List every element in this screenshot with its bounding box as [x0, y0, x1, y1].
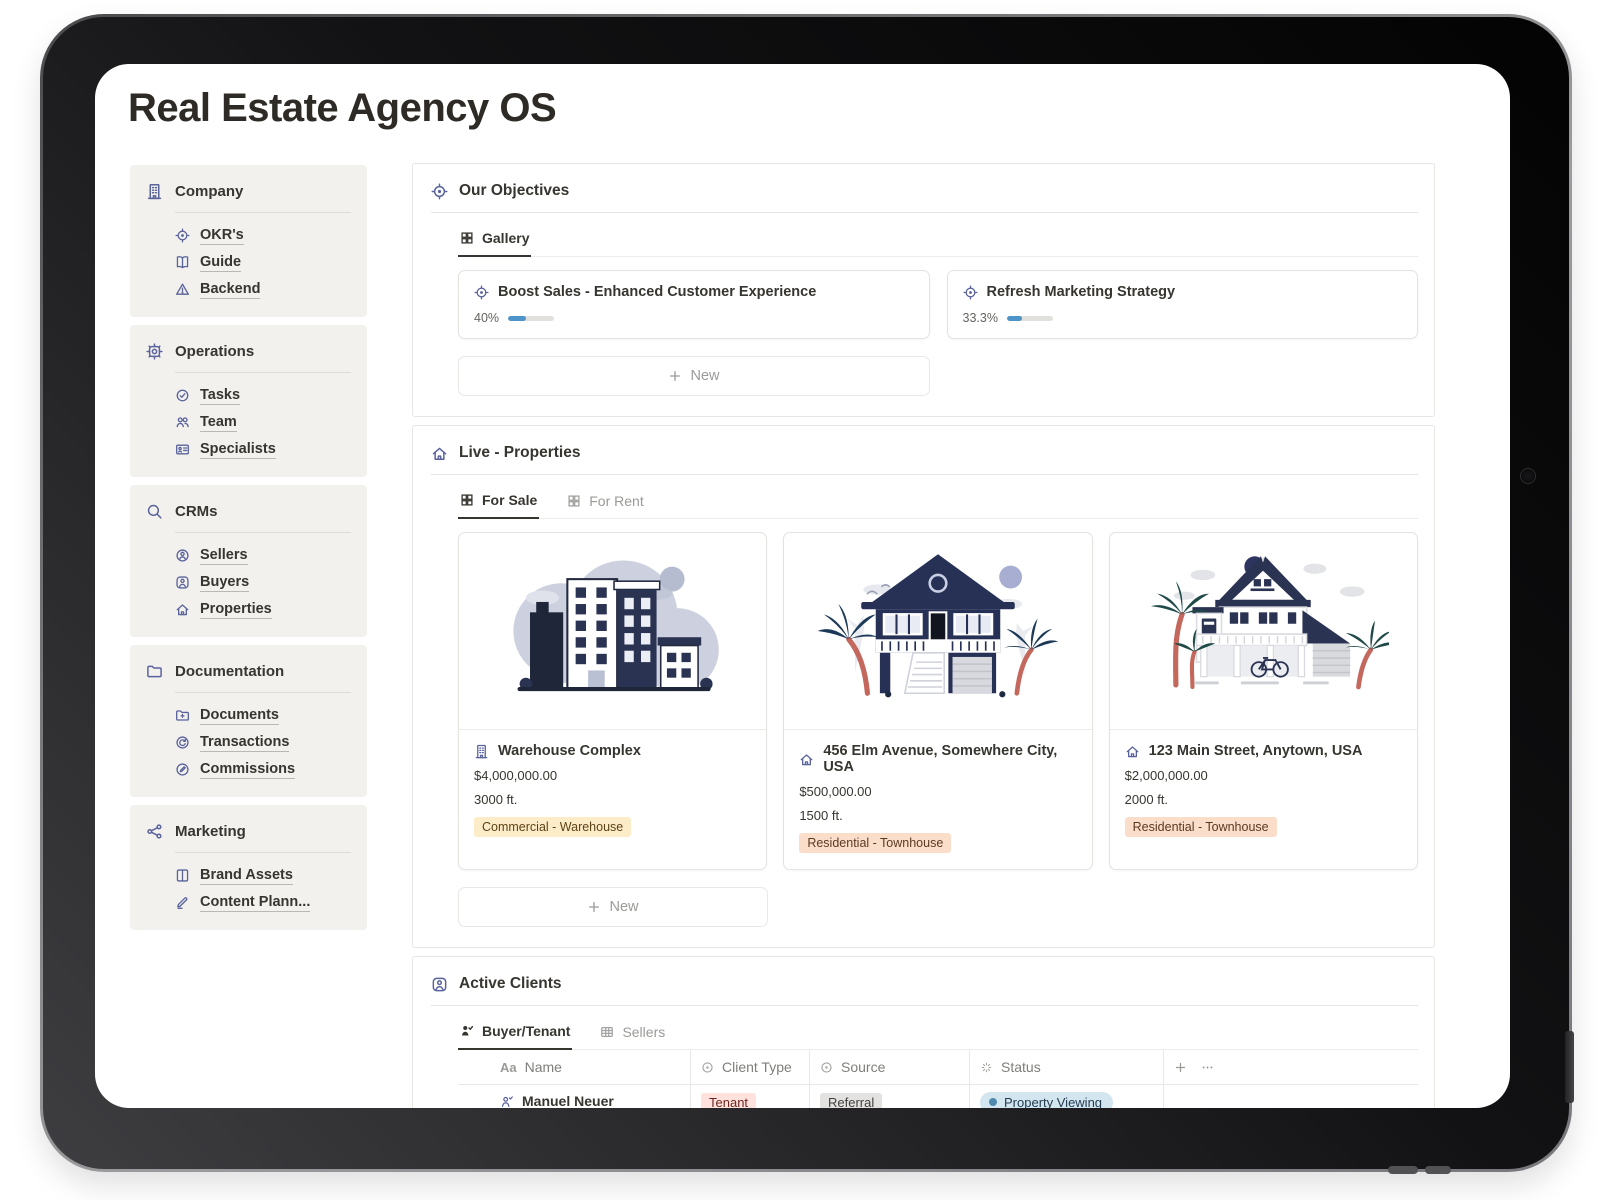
person-circle-icon	[431, 976, 448, 993]
divider	[175, 372, 351, 373]
sidebar-section-header: CRMs	[146, 503, 351, 520]
sidebar-item-okrs[interactable]: OKR's	[175, 222, 351, 249]
progress-bar	[508, 316, 554, 321]
objective-title: Refresh Marketing Strategy	[987, 284, 1176, 300]
side-button	[1565, 1031, 1574, 1103]
sidebar-item-guide[interactable]: Guide	[175, 249, 351, 276]
objectives-title: Our Objectives	[459, 182, 569, 200]
divider	[175, 692, 351, 693]
home-icon	[799, 752, 814, 767]
tab-label: For Rent	[589, 493, 643, 509]
properties-title: Live - Properties	[459, 444, 580, 462]
share-icon	[146, 823, 163, 840]
sidebar-section-documentation: Documentation Documents Transactions	[130, 645, 367, 797]
table-header-row: Aa Name Client Type Source	[458, 1050, 1418, 1085]
column-header-client-type[interactable]: Client Type	[722, 1059, 792, 1075]
tab-label: Buyer/Tenant	[482, 1023, 570, 1039]
sidebar-item-transactions[interactable]: Transactions	[175, 729, 351, 756]
sidebar-item-documents[interactable]: Documents	[175, 702, 351, 729]
column-header-source[interactable]: Source	[841, 1059, 885, 1075]
tablet-screen: Real Estate Agency OS Company OKR's	[95, 64, 1510, 1108]
property-tag: Residential - Townhouse	[1125, 817, 1277, 837]
tab-sellers[interactable]: Sellers	[598, 1014, 667, 1050]
column-header-status[interactable]: Status	[1001, 1059, 1041, 1075]
sidebar-item-specialists[interactable]: Specialists	[175, 436, 351, 463]
beach-villa-illustration	[1110, 533, 1417, 730]
progress-percent: 40%	[474, 311, 499, 325]
more-options-icon[interactable]	[1201, 1061, 1214, 1074]
sidebar-section-label: Company	[175, 183, 243, 200]
table-icon	[600, 1025, 614, 1039]
target-icon	[963, 285, 978, 300]
home-icon	[175, 602, 190, 617]
folder-plus-icon	[175, 708, 190, 723]
building-icon	[146, 183, 163, 200]
property-title: Warehouse Complex	[498, 743, 641, 759]
check-circle-icon	[175, 388, 190, 403]
select-icon	[701, 1061, 714, 1074]
tablet-bezel: Real Estate Agency OS Company OKR's	[43, 17, 1569, 1169]
objective-title: Boost Sales - Enhanced Customer Experien…	[498, 284, 816, 300]
beach-house-illustration	[784, 533, 1091, 730]
sidebar-item-content-planner[interactable]: Content Plann...	[175, 889, 351, 916]
clients-title: Active Clients	[459, 975, 562, 993]
client-name[interactable]: Manuel Neuer	[522, 1093, 614, 1108]
sidebar-item-properties[interactable]: Properties	[175, 596, 351, 623]
sidebar-section-company: Company OKR's Guide	[130, 165, 367, 317]
property-price: $4,000,000.00	[474, 768, 751, 783]
divider	[175, 532, 351, 533]
book-icon	[175, 255, 190, 270]
refresh-circle-icon	[175, 735, 190, 750]
tab-label: For Sale	[482, 492, 537, 508]
property-tag: Commercial - Warehouse	[474, 817, 631, 837]
sidebar-section-label: Documentation	[175, 663, 284, 680]
home-icon	[431, 445, 448, 462]
sidebar-item-sellers[interactable]: Sellers	[175, 542, 351, 569]
person-check-icon	[460, 1024, 474, 1038]
source-tag: Referral	[820, 1093, 882, 1109]
pencil-circle-icon	[175, 762, 190, 777]
sidebar-section-crms: CRMs Sellers Buyers	[130, 485, 367, 637]
people-icon	[175, 415, 190, 430]
tab-for-rent[interactable]: For Rent	[565, 483, 645, 519]
status-badge: Property Viewing	[980, 1092, 1113, 1109]
sidebar-section-header: Documentation	[146, 663, 351, 680]
camera-icon	[1521, 469, 1535, 483]
sidebar-item-buyers[interactable]: Buyers	[175, 569, 351, 596]
status-spinner-icon	[980, 1061, 993, 1074]
person-circle-icon	[175, 548, 190, 563]
sidebar-section-header: Company	[146, 183, 351, 200]
divider	[175, 212, 351, 213]
text-type-icon: Aa	[500, 1060, 517, 1075]
sidebar: Company OKR's Guide	[130, 165, 367, 938]
folder-icon	[146, 663, 163, 680]
client-type-tag: Tenant	[701, 1093, 756, 1109]
sidebar-item-brand-assets[interactable]: Brand Assets	[175, 862, 351, 889]
progress-bar	[1007, 316, 1053, 321]
person-circle-icon	[175, 575, 190, 590]
tab-label: Gallery	[482, 230, 529, 246]
objective-card-boost-sales[interactable]: Boost Sales - Enhanced Customer Experien…	[458, 270, 930, 339]
target-icon	[175, 228, 190, 243]
home-icon	[1125, 744, 1140, 759]
sidebar-section-label: CRMs	[175, 503, 218, 520]
warning-triangle-icon	[175, 282, 190, 297]
objectives-panel: Our Objectives Gallery	[412, 163, 1435, 417]
new-property-button[interactable]: New	[458, 887, 768, 927]
pencil-icon	[175, 895, 190, 910]
add-column-icon[interactable]	[1174, 1061, 1187, 1074]
sidebar-item-commissions[interactable]: Commissions	[175, 756, 351, 783]
main-content: Our Objectives Gallery	[412, 163, 1435, 1108]
property-price: $2,000,000.00	[1125, 768, 1402, 783]
page-title: Real Estate Agency OS	[128, 86, 556, 131]
sidebar-section-header: Marketing	[146, 823, 351, 840]
new-objective-button[interactable]: New	[458, 356, 930, 396]
tab-for-sale[interactable]: For Sale	[458, 483, 539, 519]
person-check-icon	[500, 1095, 514, 1108]
progress-percent: 33.3%	[963, 311, 998, 325]
target-icon	[474, 285, 489, 300]
sidebar-section-label: Operations	[175, 343, 254, 360]
tablet-device: Real Estate Agency OS Company OKR's	[40, 14, 1572, 1172]
sidebar-item-backend[interactable]: Backend	[175, 276, 351, 303]
table-row-manuel-neuer[interactable]: Manuel Neuer Tenant Referral	[458, 1085, 1418, 1108]
gear-icon	[146, 343, 163, 360]
divider	[431, 212, 1418, 213]
property-size: 3000 ft.	[474, 792, 751, 807]
search-icon	[146, 503, 163, 520]
progress-fill	[508, 316, 526, 321]
properties-panel: Live - Properties For Sale For Rent	[412, 425, 1435, 948]
property-title: 456 Elm Avenue, Somewhere City, USA	[823, 743, 1076, 775]
plus-icon	[668, 369, 682, 383]
tab-buyer-tenant[interactable]: Buyer/Tenant	[458, 1014, 572, 1050]
sidebar-item-team[interactable]: Team	[175, 409, 351, 436]
divider	[431, 474, 1418, 475]
speaker-grill	[1425, 1166, 1451, 1174]
book-icon	[175, 868, 190, 883]
plus-icon	[587, 900, 601, 914]
divider	[175, 852, 351, 853]
id-card-icon	[175, 442, 190, 457]
status-dot-icon	[989, 1098, 997, 1106]
gallery-grid-icon	[460, 493, 474, 507]
table-header-filler	[1249, 1050, 1418, 1084]
objective-card-marketing-strategy[interactable]: Refresh Marketing Strategy 33.3%	[947, 270, 1419, 339]
property-size: 2000 ft.	[1125, 792, 1402, 807]
sidebar-item-tasks[interactable]: Tasks	[175, 382, 351, 409]
speaker-grill	[1388, 1166, 1418, 1174]
property-card-warehouse[interactable]: Warehouse Complex $4,000,000.00 3000 ft.…	[458, 532, 767, 870]
target-icon	[431, 183, 448, 200]
gallery-grid-icon	[567, 494, 581, 508]
property-tag: Residential - Townhouse	[799, 833, 951, 853]
clients-panel: Active Clients Buyer/Tenant Sellers	[412, 956, 1435, 1108]
divider	[431, 1005, 1418, 1006]
tab-gallery[interactable]: Gallery	[458, 221, 531, 257]
property-card-elm-avenue[interactable]: 456 Elm Avenue, Somewhere City, USA $500…	[783, 532, 1092, 870]
gallery-grid-icon	[460, 231, 474, 245]
property-price: $500,000.00	[799, 784, 1076, 799]
sidebar-section-label: Marketing	[175, 823, 246, 840]
building-icon	[474, 744, 489, 759]
sidebar-section-marketing: Marketing Brand Assets Content Plann...	[130, 805, 367, 930]
property-card-main-street[interactable]: 123 Main Street, Anytown, USA $2,000,000…	[1109, 532, 1418, 870]
clients-table: Aa Name Client Type Source	[458, 1050, 1418, 1108]
tab-label: Sellers	[622, 1024, 665, 1040]
property-size: 1500 ft.	[799, 808, 1076, 823]
column-header-name[interactable]: Name	[525, 1059, 562, 1075]
progress-fill	[1007, 316, 1022, 321]
sidebar-section-header: Operations	[146, 343, 351, 360]
property-title: 123 Main Street, Anytown, USA	[1149, 743, 1363, 759]
warehouse-illustration	[459, 533, 766, 730]
sidebar-section-operations: Operations Tasks Team	[130, 325, 367, 477]
select-icon	[820, 1061, 833, 1074]
